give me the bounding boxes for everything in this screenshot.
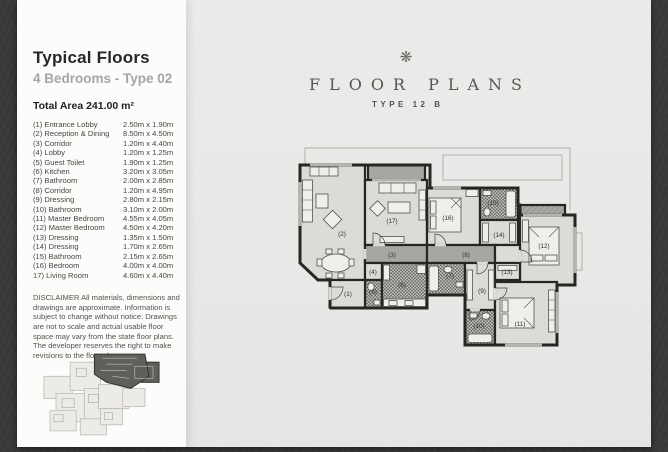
room-dims: 4.00m x 4.00m	[123, 261, 176, 270]
room-label: (7) Bathroom	[33, 176, 123, 185]
room-label: (8) Corridor	[33, 186, 123, 195]
room-label-3: (3)	[388, 252, 396, 259]
room-list-row: (13) Dressing1.35m x 1.50m	[33, 233, 176, 242]
room-label: 17) Living Room	[33, 271, 123, 280]
room-list-row: (10) Bathroom3.10m x 2.00m	[33, 205, 176, 214]
room-dims: 1.90m x 1.25m	[123, 158, 176, 167]
room-dims: 2.80m x 2.15m	[123, 195, 176, 204]
room-dims: 4.50m x 4.20m	[123, 223, 176, 232]
room-label: (5) Guest Toilet	[33, 158, 123, 167]
room-list-row: (1) Entrance Lobby2.50m x 1.90m	[33, 120, 176, 129]
room-dims: 1.20m x 4.95m	[123, 186, 176, 195]
room-label: (15) Bathroom	[33, 252, 123, 261]
room-label-10: (10)	[473, 323, 484, 330]
room-list-row: (14) Dressing1.70m x 2.65m	[33, 242, 176, 251]
room-label-8: (8)	[462, 252, 470, 259]
plan-type-label: TYPE 12 B	[300, 100, 512, 109]
sidebar: Typical Floors 4 Bedrooms - Type 02 Tota…	[17, 0, 186, 447]
key-plan-thumbnail	[29, 348, 179, 444]
room-dims: 3.10m x 2.00m	[123, 205, 176, 214]
room-dims: 1.20m x 4.40m	[123, 139, 176, 148]
room-list-row: (7) Bathroom2.00m x 2.85m	[33, 176, 176, 185]
key-plan-highlighted-unit	[94, 354, 159, 388]
room-label: (16) Bedroom	[33, 261, 123, 270]
room-label-11: (11)	[515, 321, 526, 328]
total-area: Total Area 241.00 m²	[33, 100, 176, 112]
room-list-row: (4) Lobby1.20m x 1.25m	[33, 148, 176, 157]
room-list: (1) Entrance Lobby2.50m x 1.90m (2) Rece…	[33, 120, 176, 280]
room-label-15: (15)	[487, 200, 498, 207]
room-list-row: (5) Guest Toilet1.90m x 1.25m	[33, 158, 176, 167]
room-dims: 1.35m x 1.50m	[123, 233, 176, 242]
page-title: Typical Floors	[33, 48, 176, 68]
room-list-row: (12) Master Bedroom4.50m x 4.20m	[33, 223, 176, 232]
corridor-8	[427, 245, 495, 263]
room-dims: 4.55m x 4.05m	[123, 214, 176, 223]
corridor-3	[365, 245, 427, 263]
page-subtitle: 4 Bedrooms - Type 02	[33, 71, 176, 86]
room-list-row: (6) Kitchen3.20m x 3.05m	[33, 167, 176, 176]
room-label: (14) Dressing	[33, 242, 123, 251]
room-label: (2) Reception & Dining	[33, 129, 123, 138]
room-label: (12) Master Bedroom	[33, 223, 123, 232]
room-dims: 4.60m x 4.40m	[123, 271, 176, 280]
room-dims: 1.70m x 2.65m	[123, 242, 176, 251]
room-label: (11) Master Bedroom	[33, 214, 123, 223]
room-label: (4) Lobby	[33, 148, 123, 157]
room-list-row: (8) Corridor1.20m x 4.95m	[33, 186, 176, 195]
room-label-12: (12)	[538, 243, 549, 250]
room-list-row: (3) Corridor1.20m x 4.40m	[33, 139, 176, 148]
room-list-row: (9) Dressing2.80m x 2.15m	[33, 195, 176, 204]
room-label: (9) Dressing	[33, 195, 123, 204]
balcony-living	[368, 165, 425, 180]
room-label-2: (2)	[338, 231, 346, 238]
ornament-icon: ❋	[300, 50, 512, 66]
room-label-1: (1)	[344, 291, 352, 298]
room-label-4: (4)	[369, 269, 377, 276]
room-label-13: (13)	[501, 269, 512, 276]
room-dims: 2.50m x 1.90m	[123, 120, 176, 129]
room-list-row: 17) Living Room4.60m x 4.40m	[33, 271, 176, 280]
room-dims: 2.00m x 2.85m	[123, 176, 176, 185]
room-label: (3) Corridor	[33, 139, 123, 148]
lobby-area	[495, 245, 520, 263]
room-list-row: (11) Master Bedroom4.55m x 4.05m	[33, 214, 176, 223]
room-label-6: (6)	[398, 282, 406, 289]
plan-header: ❋ FLOOR PLANS TYPE 12 B	[300, 50, 512, 109]
room-label: (13) Dressing	[33, 233, 123, 242]
brochure-page: Typical Floors 4 Bedrooms - Type 02 Tota…	[0, 0, 668, 452]
room-label: (1) Entrance Lobby	[33, 120, 123, 129]
room-label-17: (17)	[386, 218, 397, 225]
room-list-row: (15) Bathroom2.15m x 2.65m	[33, 252, 176, 261]
room-label: (6) Kitchen	[33, 167, 123, 176]
room-dims: 8.50m x 4.50m	[123, 129, 176, 138]
room-label-14: (14)	[493, 232, 504, 239]
room-label-9: (9)	[478, 288, 486, 295]
room-dims: 2.15m x 2.65m	[123, 252, 176, 261]
room-label-16: (16)	[442, 215, 453, 222]
room-label-7: (7)	[446, 273, 454, 280]
room-label: (10) Bathroom	[33, 205, 123, 214]
room-label-5: (5)	[369, 289, 377, 296]
room-list-row: (2) Reception & Dining8.50m x 4.50m	[33, 129, 176, 138]
floor-plan-drawing: (1) (2) (3) (4) (5) (6) (7) (8) (9) (10)…	[280, 130, 620, 370]
room-dims: 1.20m x 1.25m	[123, 148, 176, 157]
room-dims: 3.20m x 3.05m	[123, 167, 176, 176]
floor-plans-title: FLOOR PLANS	[300, 75, 512, 94]
room-list-row: (16) Bedroom4.00m x 4.00m	[33, 261, 176, 270]
